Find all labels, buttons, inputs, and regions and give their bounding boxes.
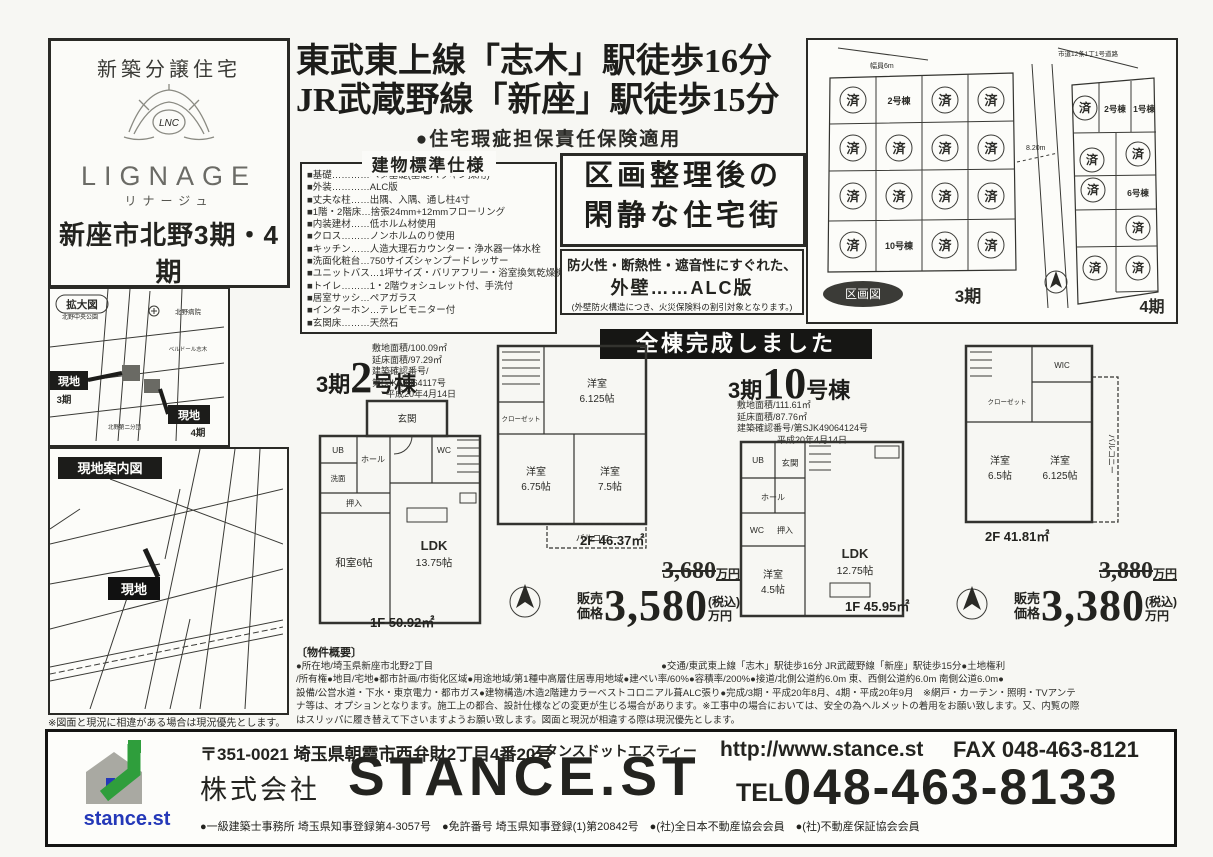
svg-text:洋室: 洋室 [1050, 454, 1070, 467]
unit1-floor2-plan: 洋室 6.125帖 クローゼット 洋室 6.75帖 洋室 7.5帖 バルコニー [492, 342, 654, 559]
svg-text:UB: UB [332, 445, 344, 455]
svg-text:現地: 現地 [58, 374, 80, 388]
unit1-floor1-plan: 玄関 ホール UB 洗面 WC 押入 和室6帖 LDK 13.75帖 [312, 398, 488, 635]
svg-text:13.75帖: 13.75帖 [416, 556, 453, 569]
alc-box: 防火性・断熱性・遮音性にすぐれた、 外壁……ALC版 (外壁防火構造につき、火災… [560, 249, 804, 315]
svg-text:クローゼット: クローゼット [502, 414, 541, 423]
svg-text:玄関: 玄関 [397, 413, 416, 425]
svg-text:押入: 押入 [777, 525, 793, 535]
company-name: STANCE.ST [348, 746, 701, 806]
svg-text:現地: 現地 [121, 582, 147, 597]
unit1-info: 敷地面積/100.09㎡ 延床面積/97.29㎡ 建築確認番号/ 第SJK490… [372, 343, 456, 401]
svg-text:WC: WC [750, 525, 764, 535]
unit1-floor2-label: 2F 46.37㎡ [580, 530, 644, 549]
svg-text:3期: 3期 [955, 287, 981, 306]
svg-text:6.5帖: 6.5帖 [988, 469, 1012, 482]
flyer-page: 新築分譲住宅 LNC LIGNAGE リナージュ 新座市北野3期・4期 全24棟… [0, 0, 1213, 857]
unit2-compass-icon [952, 580, 992, 629]
svg-text:済: 済 [984, 238, 998, 253]
headline-line2: JR武蔵野線「新座」駅徒歩15分 [296, 81, 801, 120]
svg-text:洋室: 洋室 [587, 377, 607, 390]
svg-text:WIC: WIC [1054, 361, 1070, 370]
guide-map: 現地 現地案内図 [48, 447, 289, 715]
tel-label: TEL [736, 779, 783, 808]
svg-text:済: 済 [846, 141, 860, 156]
svg-text:済: 済 [984, 93, 998, 108]
svg-text:区画図: 区画図 [845, 287, 881, 301]
company-prefix: 株式会社 [200, 768, 320, 807]
svg-text:8.20m: 8.20m [1026, 145, 1046, 152]
svg-text:済: 済 [984, 189, 998, 204]
insurance-note: ●住宅瑕疵担保責任保険適用 [296, 124, 801, 151]
svg-text:6.125帖: 6.125帖 [1042, 469, 1077, 482]
svg-text:4.5帖: 4.5帖 [761, 583, 785, 596]
svg-text:済: 済 [1132, 146, 1145, 161]
svg-text:LNC: LNC [159, 118, 180, 129]
svg-text:済: 済 [846, 189, 860, 204]
svg-text:済: 済 [938, 189, 952, 204]
svg-text:バルコニー: バルコニー [1107, 434, 1116, 474]
svg-text:済: 済 [1132, 260, 1145, 275]
svg-text:洋室: 洋室 [990, 454, 1010, 467]
svg-text:10号棟: 10号棟 [885, 240, 914, 251]
svg-text:玄関: 玄関 [781, 458, 798, 468]
svg-text:LDK: LDK [842, 546, 869, 561]
svg-text:済: 済 [1079, 100, 1092, 115]
svg-text:7.5帖: 7.5帖 [598, 480, 622, 493]
unit1-price: 3,680万円 販売価格 3,580 (税込)万円 [575, 558, 740, 627]
brand-kana: リナージュ [51, 192, 287, 209]
svg-text:12.75帖: 12.75帖 [837, 564, 874, 577]
svg-text:3期: 3期 [57, 394, 72, 406]
svg-text:2号棟: 2号棟 [887, 95, 911, 106]
headline: 東武東上線「志木」駅徒歩16分 JR武蔵野線「新座」駅徒歩15分 ●住宅瑕疵担保… [296, 42, 801, 151]
svg-text:済: 済 [892, 189, 906, 204]
spec-box: 建物標準仕様 ■基礎…………ベタ基礎(基礎パッキン採用) ■外装…………ALC版… [300, 162, 557, 334]
svg-text:UB: UB [752, 455, 764, 465]
brand-box: 新築分譲住宅 LNC LIGNAGE リナージュ 新座市北野3期・4期 全24棟 [48, 38, 290, 288]
svg-text:現地案内図: 現地案内図 [77, 461, 142, 476]
svg-text:済: 済 [938, 141, 952, 156]
svg-text:6号棟: 6号棟 [1127, 188, 1149, 198]
svg-text:北野中央公園: 北野中央公園 [62, 313, 98, 321]
brand-name: LIGNAGE [51, 161, 287, 192]
brand-tagline: 新築分譲住宅 [51, 53, 287, 82]
svg-text:済: 済 [846, 238, 860, 253]
svg-text:1号棟: 1号棟 [1133, 104, 1155, 114]
plot-map-drawing: 市道12条1丁1号道路 幅員6m 済 2号棟 済 済 済 済 済 済 済 済 済… [808, 40, 1172, 318]
svg-text:済: 済 [938, 238, 952, 253]
svg-text:済: 済 [846, 93, 860, 108]
svg-text:ベルドール志木: ベルドール志木 [169, 345, 208, 353]
unit2-price: 3,880万円 販売価格 3,380 (税込)万円 [1012, 558, 1177, 627]
unit2-floor1-label: 1F 45.95㎡ [845, 596, 909, 615]
license-line: ●一級建築士事務所 埼玉県知事登録第4-3057号 ●免許番号 埼玉県知事登録(… [200, 818, 920, 834]
company-tel: TEL 048-463-8133 [736, 760, 1119, 814]
svg-text:済: 済 [984, 141, 998, 156]
svg-text:押入: 押入 [346, 498, 362, 508]
svg-text:北野第二分団: 北野第二分団 [108, 423, 142, 431]
unit1-compass-icon [505, 578, 545, 627]
svg-text:クローゼット: クローゼット [988, 397, 1027, 406]
svg-text:済: 済 [1087, 182, 1100, 197]
unit2-floor2-plan: WIC クローゼット 洋室 6.5帖 洋室 6.125帖 バルコニー [962, 342, 1124, 547]
spec-list: ■基礎…………ベタ基礎(基礎パッキン採用) ■外装…………ALC版 ■丈夫な柱…… [302, 164, 555, 330]
svg-text:和室6帖: 和室6帖 [335, 556, 373, 569]
footer: stance.st 〒351-0021 埼玉県朝霞市西弁財2丁目4番20号 スタ… [45, 729, 1177, 847]
svg-text:済: 済 [1132, 220, 1145, 235]
svg-text:洋室: 洋室 [763, 568, 783, 581]
svg-text:4期: 4期 [191, 427, 206, 439]
quiet-street-box: 区画整理後の 閑静な住宅街 [560, 153, 806, 247]
svg-text:済: 済 [892, 141, 906, 156]
svg-text:6.75帖: 6.75帖 [521, 480, 550, 493]
svg-text:済: 済 [1086, 152, 1099, 167]
spec-title: 建物標準仕様 [362, 151, 496, 176]
svg-text:洋室: 洋室 [526, 465, 546, 478]
svg-text:6.125帖: 6.125帖 [579, 392, 614, 405]
svg-text:4期: 4期 [1140, 297, 1165, 316]
svg-text:WC: WC [437, 445, 451, 455]
svg-text:幅員6m: 幅員6m [870, 61, 894, 70]
enlarged-map: 北野中央公園 北野病院 ベルドール志木 現地 3期 現地 4期 北野第二分団 拡… [48, 287, 230, 447]
svg-text:LDK: LDK [421, 538, 448, 553]
svg-text:洗面: 洗面 [331, 473, 346, 483]
svg-text:北野病院: 北野病院 [175, 307, 202, 316]
compass-icon [1045, 271, 1067, 293]
tel-number: 048-463-8133 [783, 760, 1118, 814]
plot-map: 市道12条1丁1号道路 幅員6m 済 2号棟 済 済 済 済 済 済 済 済 済… [806, 38, 1178, 324]
map-note: ※図面と現況に相違がある場合は現況優先とします。 [48, 714, 298, 729]
svg-text:済: 済 [1089, 260, 1102, 275]
svg-text:済: 済 [938, 93, 952, 108]
brand-crest-icon: LNC [114, 82, 224, 154]
svg-text:拡大図: 拡大図 [66, 298, 98, 311]
unit2-floor2-label: 2F 41.81㎡ [985, 526, 1049, 545]
project-name: 新座市北野3期・4期 [51, 215, 287, 289]
unit1-floor1-label: 1F 50.92㎡ [370, 612, 434, 631]
headline-line1: 東武東上線「志木」駅徒歩16分 [296, 42, 801, 81]
property-overview: 〔物件概要〕 ●所在地/埼玉県新座市北野2丁目 ●交通/東武東上線「志木」駅徒歩… [296, 644, 1184, 727]
logo-text: stance.st [62, 808, 192, 831]
svg-text:現地: 現地 [178, 408, 200, 422]
svg-text:ホール: ホール [761, 493, 785, 502]
company-logo-icon [76, 738, 176, 813]
svg-text:2号棟: 2号棟 [1104, 104, 1126, 114]
svg-text:ホール: ホール [361, 455, 385, 464]
svg-text:洋室: 洋室 [600, 465, 620, 478]
